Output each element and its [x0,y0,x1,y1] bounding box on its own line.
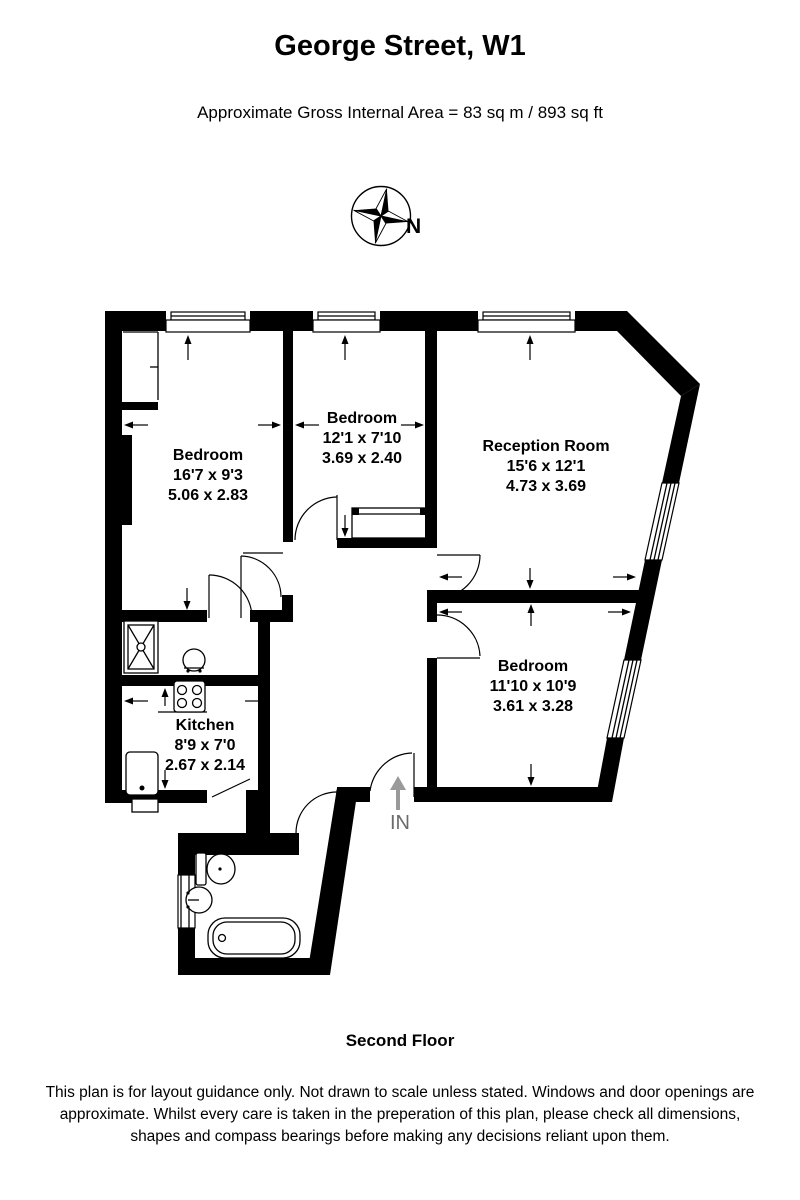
bathtub-icon [208,918,300,958]
door-arc [295,495,337,540]
window-icon [166,312,250,332]
entrance-label: IN [380,812,420,835]
room-label-reception-room: Reception Room 15'6 x 12'1 4.73 x 3.69 [482,437,609,497]
room-size-metric: 4.73 x 3.69 [482,477,609,497]
compass-north-label: N [406,215,421,238]
entrance-arrow-icon [390,776,406,810]
compass-rose-icon: N [352,187,422,246]
floorplan-page: George Street, W1 Approximate Gross Inte… [0,0,800,1200]
room-size-metric: 3.61 x 3.28 [490,697,577,717]
hob-icon [174,681,205,712]
room-label-bedroom-3: Bedroom 11'10 x 10'9 3.61 x 3.28 [490,657,577,717]
shower-icon [124,621,158,673]
window-icon [607,660,641,738]
room-label-kitchen: Kitchen 8'9 x 7'0 2.67 x 2.14 [165,716,245,776]
window-icon [478,312,575,332]
toilet-icon [196,853,235,885]
room-label-bedroom-1: Bedroom 16'7 x 9'3 5.06 x 2.83 [168,446,248,506]
door-arc [437,615,480,658]
room-size-metric: 3.69 x 2.40 [322,449,402,469]
fixtures [124,621,300,958]
basin-icon [186,887,212,913]
window-icon [645,483,679,560]
built-in-wardrobes [123,332,427,712]
room-label-bedroom-2: Bedroom 12'1 x 7'10 3.69 x 2.40 [322,409,402,469]
room-name: Bedroom [322,409,402,429]
room-name: Bedroom [168,446,248,466]
disclaimer-line: approximate. Whilst every care is taken … [0,1104,800,1126]
room-size-metric: 2.67 x 2.14 [165,756,245,776]
disclaimer-line: This plan is for layout guidance only. N… [0,1082,800,1104]
room-name: Bedroom [490,657,577,677]
disclaimer-line: shapes and compass bearings before makin… [0,1126,800,1148]
floor-label: Second Floor [0,1031,800,1051]
toilet-icon [183,649,205,673]
window-icon [313,312,380,332]
room-size-imperial: 8'9 x 7'0 [165,736,245,756]
door-arc [241,556,281,618]
door-arc [212,779,250,797]
room-size-imperial: 12'1 x 7'10 [322,429,402,449]
entrance-door-arc [370,753,414,797]
disclaimer-text: This plan is for layout guidance only. N… [0,1082,800,1148]
room-size-metric: 5.06 x 2.83 [168,486,248,506]
room-name: Kitchen [165,716,245,736]
room-size-imperial: 16'7 x 9'3 [168,466,248,486]
door-arc [209,575,252,618]
room-name: Reception Room [482,437,609,457]
floorplan-drawing: N [0,0,800,1200]
room-size-imperial: 11'10 x 10'9 [490,677,577,697]
room-size-imperial: 15'6 x 12'1 [482,457,609,477]
